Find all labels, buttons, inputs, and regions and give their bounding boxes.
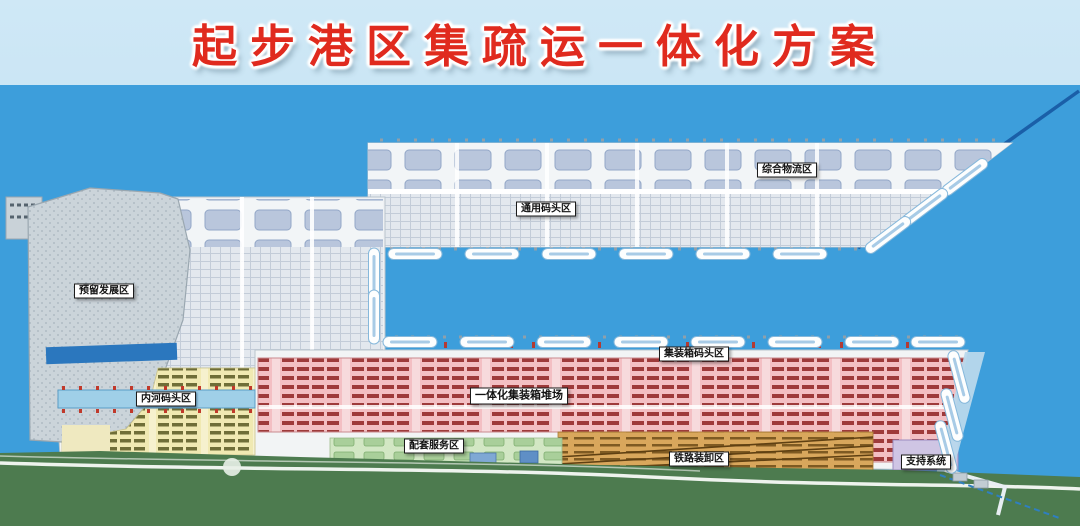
page-title: 起步港区集疏运一体化方案	[192, 10, 888, 75]
title-banner: 起步港区集疏运一体化方案	[0, 0, 1080, 85]
zone-label-general-terminal: 通用码头区	[516, 202, 576, 217]
port-plan-map: 预留发展区 综合物流区 通用码头区 集装箱码头区 一体化集装箱堆场 内河码头区 …	[0, 85, 1080, 526]
zone-label-container-terminal: 集装箱码头区	[659, 347, 729, 362]
zone-middle-land	[160, 197, 385, 370]
zone-label-reserved-development: 预留发展区	[74, 284, 134, 299]
zone-label-inland-river-terminal: 内河码头区	[136, 392, 196, 407]
zone-label-integrated-container-yard: 一体化集装箱堆场	[470, 388, 568, 405]
zone-label-railway-loading: 铁路装卸区	[669, 452, 729, 467]
zone-label-support-system: 支持系统	[901, 455, 951, 470]
zone-label-supporting-services: 配套服务区	[404, 439, 464, 454]
zone-label-comprehensive-logistics: 综合物流区	[757, 163, 817, 178]
port-plan-poster: 起步港区集疏运一体化方案	[0, 0, 1080, 526]
